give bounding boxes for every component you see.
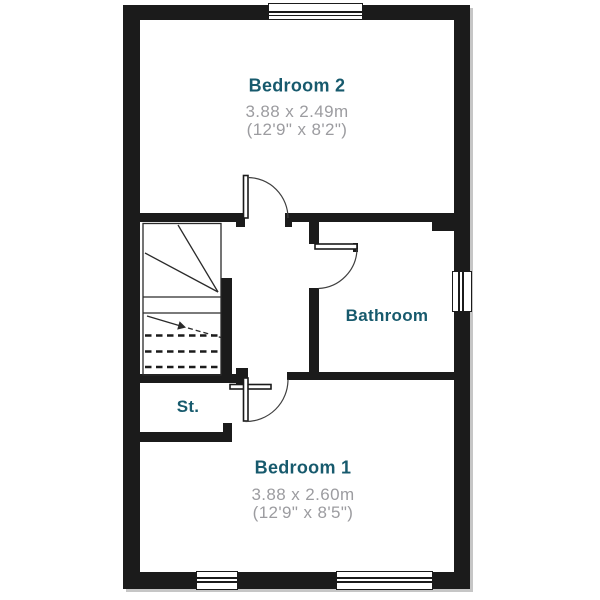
bathroom-door-leaf (315, 244, 357, 249)
storage-door-leaf (230, 385, 271, 390)
bathroom-door (315, 244, 357, 289)
storage-label: St. (177, 397, 200, 417)
bathroom-label: Bathroom (346, 306, 429, 326)
bedroom2-dim-imperial: (12'9" x 8'2") (245, 121, 348, 139)
bedroom1-dim-imperial: (12'9" x 8'5") (251, 504, 354, 522)
bedroom2-label: Bedroom 2 (249, 76, 346, 97)
staircase (143, 224, 221, 376)
bedroom2-door-leaf (244, 176, 249, 219)
bedroom2-door (244, 176, 289, 219)
bedroom2-door-swing-arc (248, 178, 288, 219)
bedroom1-label: Bedroom 1 (255, 458, 352, 479)
bedroom2-dim-metric: 3.88 x 2.49m (245, 103, 348, 121)
floor-plan: Bedroom 2 3.88 x 2.49m (12'9" x 8'2") Ba… (0, 0, 600, 600)
bedroom1-dim-metric: 3.88 x 2.60m (251, 486, 354, 504)
bathroom-door-swing-arc (319, 249, 358, 289)
bedroom1-dimensions: 3.88 x 2.60m (12'9" x 8'5") (251, 486, 354, 522)
bedroom1-door (230, 378, 288, 422)
bedroom1-door-leaf (244, 378, 249, 421)
stair-direction-arrowhead (177, 321, 186, 329)
bedroom2-dimensions: 3.88 x 2.49m (12'9" x 8'2") (245, 103, 348, 139)
